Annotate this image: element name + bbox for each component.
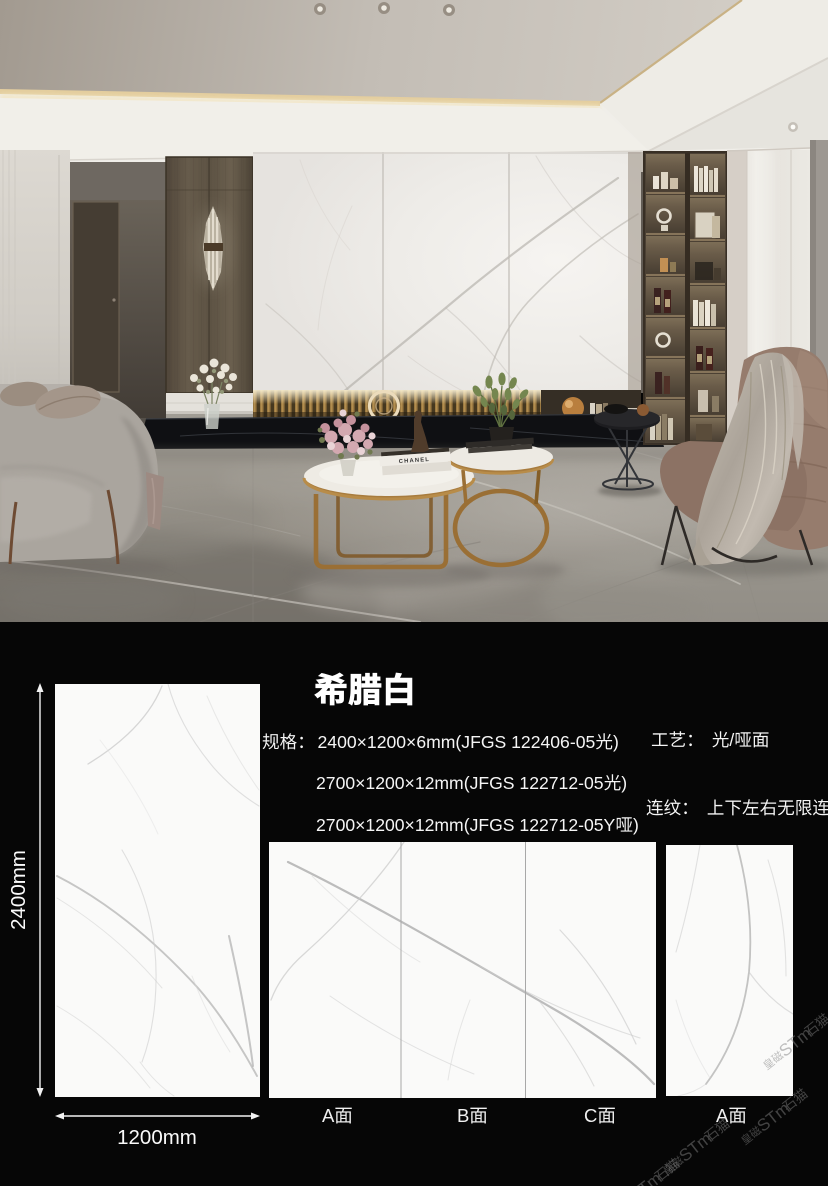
svg-text:1200mm: 1200mm [117, 1126, 197, 1149]
svg-text:2400×1200×6mm(JFGS 122406-05: 2400×1200×6mm(JFGS 122406-05 [318, 732, 596, 752]
svg-text:): ) [621, 773, 627, 793]
svg-text:2700×1200×12mm(JFGS 122712-05Y: 2700×1200×12mm(JFGS 122712-05Y [316, 815, 616, 835]
svg-text:2700×1200×12mm(JFGS 122712-05: 2700×1200×12mm(JFGS 122712-05 [316, 773, 604, 793]
svg-text:): ) [633, 815, 639, 835]
svg-text:B: B [457, 1105, 469, 1126]
svg-text:/: / [729, 730, 734, 750]
svg-text:C: C [584, 1105, 597, 1126]
svg-text:): ) [613, 732, 619, 752]
svg-text:A: A [322, 1105, 335, 1126]
svg-text:2400mm: 2400mm [7, 850, 30, 930]
